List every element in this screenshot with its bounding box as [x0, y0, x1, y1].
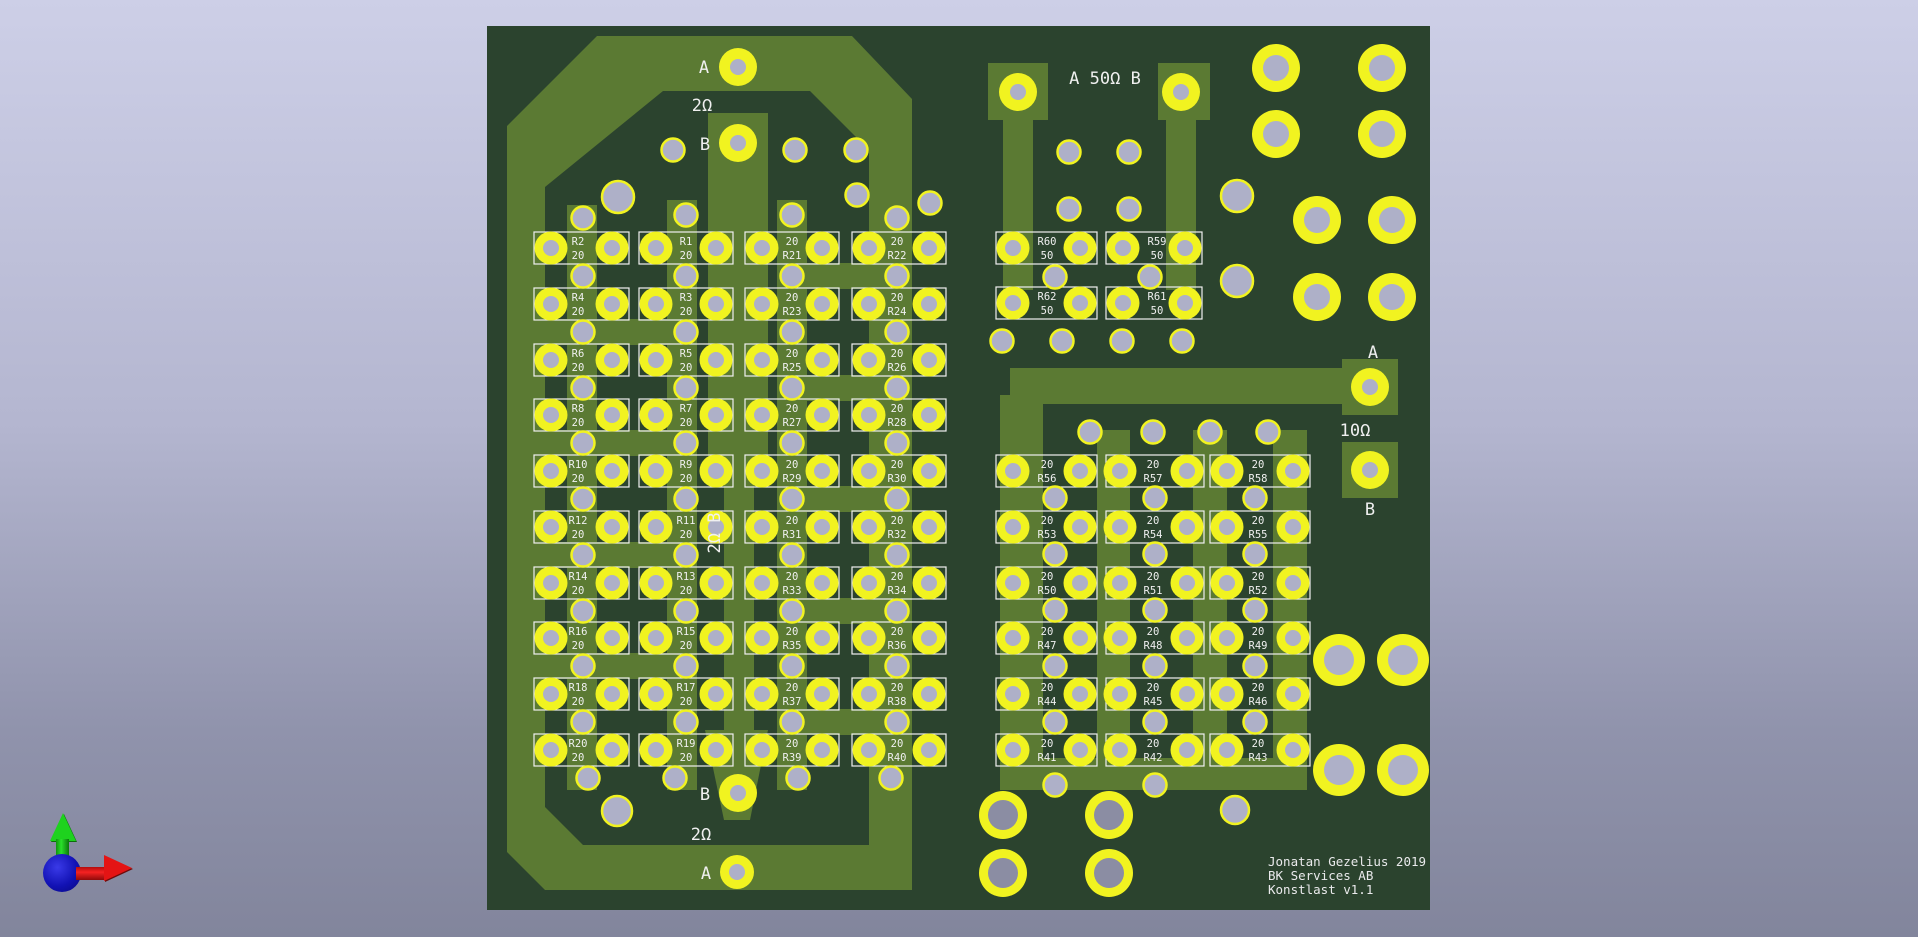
- silkscreen-text-R61: R61: [1148, 291, 1167, 303]
- via: [886, 377, 909, 400]
- via: [675, 265, 698, 288]
- pad-hole-R21: [814, 240, 830, 256]
- pad-hole-R43: [1285, 742, 1301, 758]
- via: [675, 655, 698, 678]
- pad-hole-R9: [708, 463, 724, 479]
- via: [1044, 543, 1067, 566]
- silkscreen-text-R54: 20: [1147, 515, 1160, 527]
- via: [1044, 711, 1067, 734]
- via: [1058, 141, 1081, 164]
- via: [1118, 198, 1141, 221]
- pad-hole-R29: [814, 463, 830, 479]
- silkscreen-text-R5: 20: [680, 362, 693, 374]
- via: [1044, 655, 1067, 678]
- silkscreen-text-R55: 20: [1252, 515, 1265, 527]
- silkscreen-text-R55: R55: [1249, 529, 1268, 541]
- via: [1144, 487, 1167, 510]
- pad-hole-R61: [1177, 295, 1193, 311]
- via: [577, 767, 600, 790]
- silkscreen-text-R31: 20: [786, 515, 799, 527]
- pad-hole-R46: [1219, 686, 1235, 702]
- pad-hole-R39: [754, 742, 770, 758]
- pad-hole-R36: [921, 630, 937, 646]
- via: [1044, 774, 1067, 797]
- pad-hole-R54: [1179, 519, 1195, 535]
- silkscreen-text-R47: R47: [1038, 640, 1057, 652]
- silkscreen-text-R58: R58: [1249, 473, 1268, 485]
- silkscreen-text-R4: 20: [572, 306, 585, 318]
- silkscreen-text-R45: R45: [1144, 696, 1163, 708]
- mount-pad-hole: [1369, 55, 1395, 81]
- silkscreen-text-R23: 20: [786, 292, 799, 304]
- silkscreen-net-label: 2Ω: [692, 96, 712, 116]
- via: [991, 330, 1014, 353]
- via: [572, 377, 595, 400]
- silkscreen-text-R20: R20: [569, 738, 588, 750]
- via: [572, 207, 595, 230]
- silkscreen-text-R43: 20: [1252, 738, 1265, 750]
- pad-hole-R19: [648, 742, 664, 758]
- pad-hole-R7: [708, 407, 724, 423]
- silkscreen-text-R24: R24: [888, 306, 907, 318]
- silkscreen-text-R51: R51: [1144, 585, 1163, 597]
- via: [784, 139, 807, 162]
- silkscreen-text-R58: 20: [1252, 459, 1265, 471]
- silkscreen-text-R48: R48: [1144, 640, 1163, 652]
- pad-hole-R29: [754, 463, 770, 479]
- silkscreen-text-R16: R16: [569, 626, 588, 638]
- via: [1244, 655, 1267, 678]
- silkscreen-text-R19: R19: [677, 738, 696, 750]
- board-title-block: Jonatan Gezelius 2019 BK Services AB Kon…: [1268, 855, 1426, 897]
- pad-hole-R2: [543, 240, 559, 256]
- pad-hole-R9: [648, 463, 664, 479]
- silkscreen-text-R62: 50: [1041, 305, 1054, 317]
- silkscreen-text-R13: R13: [677, 571, 696, 583]
- via: [886, 600, 909, 623]
- via: [886, 321, 909, 344]
- pad-hole-R14: [604, 575, 620, 591]
- pad-hole-R35: [754, 630, 770, 646]
- title-line-company: BK Services AB: [1268, 869, 1426, 883]
- silkscreen-text-R39: R39: [783, 752, 802, 764]
- silkscreen-text-R9: R9: [680, 459, 693, 471]
- pad-hole-R23: [754, 296, 770, 312]
- pad-hole-R26: [861, 352, 877, 368]
- mount-pad-hole: [1388, 755, 1418, 785]
- via: [572, 544, 595, 567]
- silkscreen-net-label: 2Ω: [691, 825, 711, 845]
- pad-hole-R19: [708, 742, 724, 758]
- pad-hole-R15: [648, 630, 664, 646]
- silkscreen-text-R46: R46: [1249, 696, 1268, 708]
- pad-hole-R6: [604, 352, 620, 368]
- silkscreen-net-label: B: [1365, 500, 1375, 520]
- silkscreen-text-R21: R21: [783, 250, 802, 262]
- mount-pad-hole: [1324, 755, 1354, 785]
- pad-hole-R60: [1005, 240, 1021, 256]
- pad-hole-R37: [754, 686, 770, 702]
- pad-hole-R15: [708, 630, 724, 646]
- pad-hole-R25: [814, 352, 830, 368]
- silkscreen-text-R21: 20: [786, 236, 799, 248]
- mount-pad-hole: [1304, 207, 1330, 233]
- silkscreen-net-label: A 50Ω B: [1069, 69, 1141, 89]
- silkscreen-text-R25: R25: [783, 362, 802, 374]
- pad-hole-R4: [543, 296, 559, 312]
- silkscreen-text-R45: 20: [1147, 682, 1160, 694]
- pad-hole-R10: [543, 463, 559, 479]
- silkscreen-text-R49: 20: [1252, 626, 1265, 638]
- silkscreen-text-R47: 20: [1041, 626, 1054, 638]
- silkscreen-text-R60: R60: [1038, 236, 1057, 248]
- pad-hole-R34: [861, 575, 877, 591]
- silkscreen-text-R54: R54: [1144, 529, 1163, 541]
- via: [572, 655, 595, 678]
- via: [1118, 141, 1141, 164]
- silkscreen-net-label: B: [700, 135, 710, 155]
- via: [787, 767, 810, 790]
- silkscreen-text-R49: R49: [1249, 640, 1268, 652]
- silkscreen-text-R28: 20: [891, 403, 904, 415]
- via: [675, 488, 698, 511]
- via: [1111, 330, 1134, 353]
- silkscreen-text-R37: 20: [786, 682, 799, 694]
- pad-hole-R20: [543, 742, 559, 758]
- silkscreen-text-R17: 20: [680, 696, 693, 708]
- mount-pad-hole: [1379, 207, 1405, 233]
- silkscreen-text-R14: R14: [569, 571, 588, 583]
- silkscreen-text-R11: R11: [677, 515, 696, 527]
- connector-pad-hole: [730, 785, 746, 801]
- silkscreen-text-R44: 20: [1041, 682, 1054, 694]
- silkscreen-text-R3: R3: [680, 292, 693, 304]
- connector-pad-hole: [1362, 379, 1378, 395]
- via: [1044, 487, 1067, 510]
- connector-pad-hole: [730, 135, 746, 151]
- via: [1144, 711, 1167, 734]
- silkscreen-text-R61: 50: [1151, 305, 1164, 317]
- silkscreen-text-R39: 20: [786, 738, 799, 750]
- silkscreen-text-R33: R33: [783, 585, 802, 597]
- mount-pad-hole: [1263, 55, 1289, 81]
- pad-hole-R38: [861, 686, 877, 702]
- via: [1257, 421, 1280, 444]
- pad-hole-R28: [861, 407, 877, 423]
- pad-hole-R22: [861, 240, 877, 256]
- x-axis-arrow-icon: [104, 855, 132, 881]
- silkscreen-text-R6: R6: [572, 348, 585, 360]
- silkscreen-text-R46: 20: [1252, 682, 1265, 694]
- silkscreen-text-R22: 20: [891, 236, 904, 248]
- via: [886, 488, 909, 511]
- via: [886, 711, 909, 734]
- via: [1144, 655, 1167, 678]
- via: [675, 377, 698, 400]
- via: [880, 767, 903, 790]
- silkscreen-net-label: A: [699, 58, 709, 78]
- pad-hole-R1: [648, 240, 664, 256]
- pcb-3d-viewport[interactable]: R220R12020R2120R22R420R32020R2320R24R620…: [0, 0, 1918, 937]
- silkscreen-text-R52: 20: [1252, 571, 1265, 583]
- silkscreen-text-R10: 20: [572, 473, 585, 485]
- via: [1079, 421, 1102, 444]
- pad-hole-R53: [1005, 519, 1021, 535]
- silkscreen-text-R9: 20: [680, 473, 693, 485]
- silkscreen-net-label: 2Ω B: [705, 513, 725, 554]
- silkscreen-text-R30: 20: [891, 459, 904, 471]
- pad-hole-R18: [543, 686, 559, 702]
- via: [572, 321, 595, 344]
- mount-pad-hole: [1388, 645, 1418, 675]
- silkscreen-text-R37: R37: [783, 696, 802, 708]
- pad-hole-R30: [861, 463, 877, 479]
- pad-hole-R23: [814, 296, 830, 312]
- silkscreen-net-label: B: [700, 785, 710, 805]
- silkscreen-text-R60: 50: [1041, 250, 1054, 262]
- mount-pad-hole: [1379, 284, 1405, 310]
- silkscreen-text-R35: R35: [783, 640, 802, 652]
- pad-hole-R60: [1072, 240, 1088, 256]
- via: [572, 600, 595, 623]
- via: [1139, 266, 1162, 289]
- pad-hole-R55: [1285, 519, 1301, 535]
- via: [675, 711, 698, 734]
- mount-pad-hole: [988, 858, 1018, 888]
- via: [846, 184, 869, 207]
- via: [675, 204, 698, 227]
- pad-hole-R14: [543, 575, 559, 591]
- silkscreen-text-R40: R40: [888, 752, 907, 764]
- silkscreen-text-R53: R53: [1038, 529, 1057, 541]
- via: [781, 377, 804, 400]
- copper-trace: [1010, 368, 1342, 404]
- silkscreen-text-R42: R42: [1144, 752, 1163, 764]
- silkscreen-text-R7: 20: [680, 417, 693, 429]
- via: [1044, 599, 1067, 622]
- silkscreen-text-R3: 20: [680, 306, 693, 318]
- silkscreen-text-R40: 20: [891, 738, 904, 750]
- via: [886, 265, 909, 288]
- pad-hole-R56: [1005, 463, 1021, 479]
- pad-hole-R2: [604, 240, 620, 256]
- via: [572, 711, 595, 734]
- pad-hole-R21: [754, 240, 770, 256]
- via: [1244, 487, 1267, 510]
- via: [781, 488, 804, 511]
- via: [1244, 711, 1267, 734]
- pad-hole-R47: [1005, 630, 1021, 646]
- via: [1144, 599, 1167, 622]
- pad-hole-R6: [543, 352, 559, 368]
- via: [781, 711, 804, 734]
- pad-hole-R45: [1179, 686, 1195, 702]
- silkscreen-text-R35: 20: [786, 626, 799, 638]
- silkscreen-text-R12: 20: [572, 529, 585, 541]
- silkscreen-text-R8: 20: [572, 417, 585, 429]
- silkscreen-text-R2: 20: [572, 250, 585, 262]
- pad-hole-R26: [921, 352, 937, 368]
- pad-hole-R8: [604, 407, 620, 423]
- x-axis-shaft: [76, 867, 106, 880]
- via: [1221, 796, 1249, 824]
- silkscreen-text-R41: R41: [1038, 752, 1057, 764]
- silkscreen-text-R41: 20: [1041, 738, 1054, 750]
- pad-hole-R43: [1219, 742, 1235, 758]
- pad-hole-R52: [1285, 575, 1301, 591]
- via: [1142, 421, 1165, 444]
- via: [1058, 198, 1081, 221]
- via: [886, 655, 909, 678]
- pad-hole-R18: [604, 686, 620, 702]
- via: [675, 432, 698, 455]
- via: [675, 321, 698, 344]
- pad-hole-R59: [1177, 240, 1193, 256]
- silkscreen-text-R18: 20: [572, 696, 585, 708]
- silkscreen-text-R32: R32: [888, 529, 907, 541]
- via: [1144, 543, 1167, 566]
- silkscreen-text-R29: R29: [783, 473, 802, 485]
- pad-hole-R7: [648, 407, 664, 423]
- silkscreen-text-R1: 20: [680, 250, 693, 262]
- pad-hole-R31: [754, 519, 770, 535]
- silkscreen-text-R16: 20: [572, 640, 585, 652]
- pad-hole-R37: [814, 686, 830, 702]
- silkscreen-text-R48: 20: [1147, 626, 1160, 638]
- pad-hole-R32: [861, 519, 877, 535]
- via: [781, 544, 804, 567]
- silkscreen-text-R33: 20: [786, 571, 799, 583]
- silkscreen-text-R6: 20: [572, 362, 585, 374]
- pad-hole-R27: [814, 407, 830, 423]
- pad-hole-R25: [754, 352, 770, 368]
- via: [572, 265, 595, 288]
- silkscreen-net-label: A: [701, 864, 711, 884]
- pad-hole-R42: [1179, 742, 1195, 758]
- title-line-author: Jonatan Gezelius 2019: [1268, 855, 1426, 869]
- mount-pad-hole: [988, 800, 1018, 830]
- pad-hole-R50: [1072, 575, 1088, 591]
- pad-hole-R12: [543, 519, 559, 535]
- via: [845, 139, 868, 162]
- pad-hole-R50: [1005, 575, 1021, 591]
- silkscreen-text-R51: 20: [1147, 571, 1160, 583]
- silkscreen-text-R36: R36: [888, 640, 907, 652]
- silkscreen-text-R57: R57: [1144, 473, 1163, 485]
- connector-pad-hole: [1362, 462, 1378, 478]
- pad-hole-R32: [921, 519, 937, 535]
- silkscreen-text-R42: 20: [1147, 738, 1160, 750]
- pad-hole-R1: [708, 240, 724, 256]
- pad-hole-R52: [1219, 575, 1235, 591]
- mount-pad-hole: [1094, 800, 1124, 830]
- pad-hole-R44: [1005, 686, 1021, 702]
- pad-hole-R35: [814, 630, 830, 646]
- pad-hole-R8: [543, 407, 559, 423]
- pad-hole-R38: [921, 686, 937, 702]
- pad-hole-R22: [921, 240, 937, 256]
- via: [662, 139, 685, 162]
- silkscreen-text-R24: 20: [891, 292, 904, 304]
- silkscreen-text-R43: R43: [1249, 752, 1268, 764]
- axis-orientation-gizmo: [20, 805, 140, 920]
- via: [572, 488, 595, 511]
- pad-hole-R39: [814, 742, 830, 758]
- silkscreen-text-R59: 50: [1151, 250, 1164, 262]
- mount-pad-hole: [1324, 645, 1354, 675]
- silkscreen-text-R32: 20: [891, 515, 904, 527]
- pad-hole-R30: [921, 463, 937, 479]
- pad-hole-R49: [1219, 630, 1235, 646]
- pad-hole-R55: [1219, 519, 1235, 535]
- connector-pad-hole: [729, 864, 745, 880]
- pad-hole-R10: [604, 463, 620, 479]
- silkscreen-text-R20: 20: [572, 752, 585, 764]
- pad-hole-R31: [814, 519, 830, 535]
- silkscreen-text-R2: R2: [572, 236, 585, 248]
- via: [781, 432, 804, 455]
- silkscreen-text-R8: R8: [572, 403, 585, 415]
- pad-hole-R28: [921, 407, 937, 423]
- silkscreen-text-R50: 20: [1041, 571, 1054, 583]
- via: [1144, 774, 1167, 797]
- silkscreen-text-R57: 20: [1147, 459, 1160, 471]
- pad-hole-R12: [604, 519, 620, 535]
- connector-pad-hole: [1173, 84, 1189, 100]
- silkscreen-text-R18: R18: [569, 682, 588, 694]
- silkscreen-text-R19: 20: [680, 752, 693, 764]
- pad-hole-R27: [754, 407, 770, 423]
- pad-hole-R20: [604, 742, 620, 758]
- pad-hole-R51: [1112, 575, 1128, 591]
- silkscreen-text-R38: R38: [888, 696, 907, 708]
- silkscreen-text-R62: R62: [1038, 291, 1057, 303]
- pad-hole-R54: [1112, 519, 1128, 535]
- silkscreen-text-R26: 20: [891, 348, 904, 360]
- pad-hole-R13: [648, 575, 664, 591]
- silkscreen-text-R52: R52: [1249, 585, 1268, 597]
- pad-hole-R5: [708, 352, 724, 368]
- silkscreen-text-R44: R44: [1038, 696, 1057, 708]
- via: [781, 204, 804, 227]
- silkscreen-text-R5: R5: [680, 348, 693, 360]
- pcb-svg: R220R12020R2120R22R420R32020R2320R24R620…: [0, 0, 1918, 937]
- pad-hole-R11: [648, 519, 664, 535]
- connector-pad-hole: [730, 59, 746, 75]
- pad-hole-R58: [1285, 463, 1301, 479]
- title-line-version: Konstlast v1.1: [1268, 883, 1426, 897]
- silkscreen-text-R25: 20: [786, 348, 799, 360]
- pad-hole-R24: [861, 296, 877, 312]
- silkscreen-text-R29: 20: [786, 459, 799, 471]
- silkscreen-text-R59: R59: [1148, 236, 1167, 248]
- silkscreen-net-label: A: [1368, 343, 1378, 363]
- pad-hole-R33: [814, 575, 830, 591]
- pad-hole-R5: [648, 352, 664, 368]
- via: [1171, 330, 1194, 353]
- via: [1221, 265, 1253, 297]
- silkscreen-text-R23: R23: [783, 306, 802, 318]
- via: [1051, 330, 1074, 353]
- pad-hole-R33: [754, 575, 770, 591]
- silkscreen-text-R27: R27: [783, 417, 802, 429]
- via: [675, 600, 698, 623]
- silkscreen-text-R1: R1: [680, 236, 693, 248]
- silkscreen-text-R15: 20: [680, 640, 693, 652]
- pad-hole-R46: [1285, 686, 1301, 702]
- via: [602, 796, 632, 826]
- silkscreen-text-R14: 20: [572, 585, 585, 597]
